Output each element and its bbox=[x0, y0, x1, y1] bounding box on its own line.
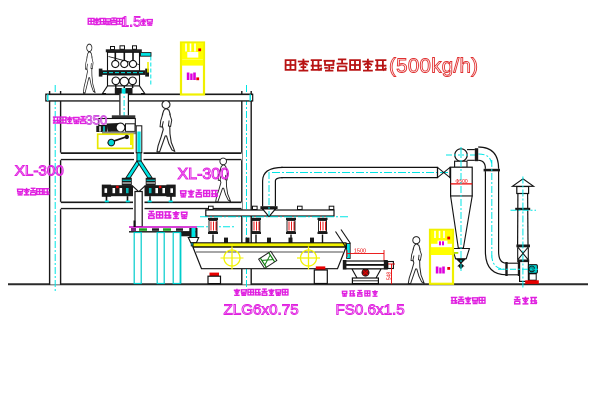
svg-text:548: 548 bbox=[387, 272, 393, 281]
svg-text:Φ500: Φ500 bbox=[455, 179, 468, 185]
svg-text:ZLG6x0.75: ZLG6x0.75 bbox=[224, 302, 299, 319]
svg-text:FS0.6x1.5: FS0.6x1.5 bbox=[336, 302, 405, 319]
svg-text:1500: 1500 bbox=[354, 249, 366, 255]
svg-text:350: 350 bbox=[86, 113, 108, 128]
svg-text:(500kg/h): (500kg/h) bbox=[389, 55, 478, 78]
svg-text:XL-300: XL-300 bbox=[178, 166, 230, 183]
svg-text:XL-300: XL-300 bbox=[15, 163, 64, 180]
svg-text:1.5: 1.5 bbox=[121, 15, 141, 31]
